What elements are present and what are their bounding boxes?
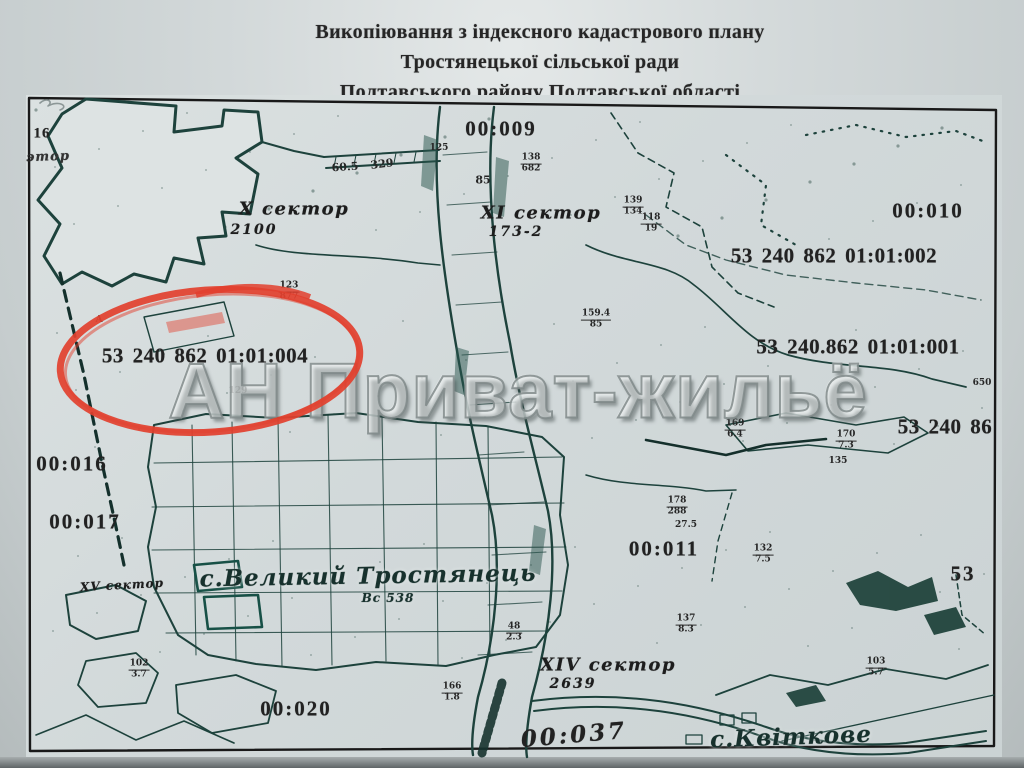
highlight-overlay: [26, 95, 1002, 761]
title-line-2: Тростянецької сільської ради: [76, 50, 1004, 75]
title-line-1: Викопіювання з індексного кадастрового п…: [76, 20, 1004, 45]
map-area: 00:00900:01000:01600:01700:01100:02000:0…: [26, 95, 1002, 761]
scanned-cadastral-map: Викопіювання з індексного кадастрового п…: [0, 0, 1024, 768]
highlight-parcel-fill: [166, 312, 225, 333]
highlight-ellipse: [55, 280, 364, 443]
